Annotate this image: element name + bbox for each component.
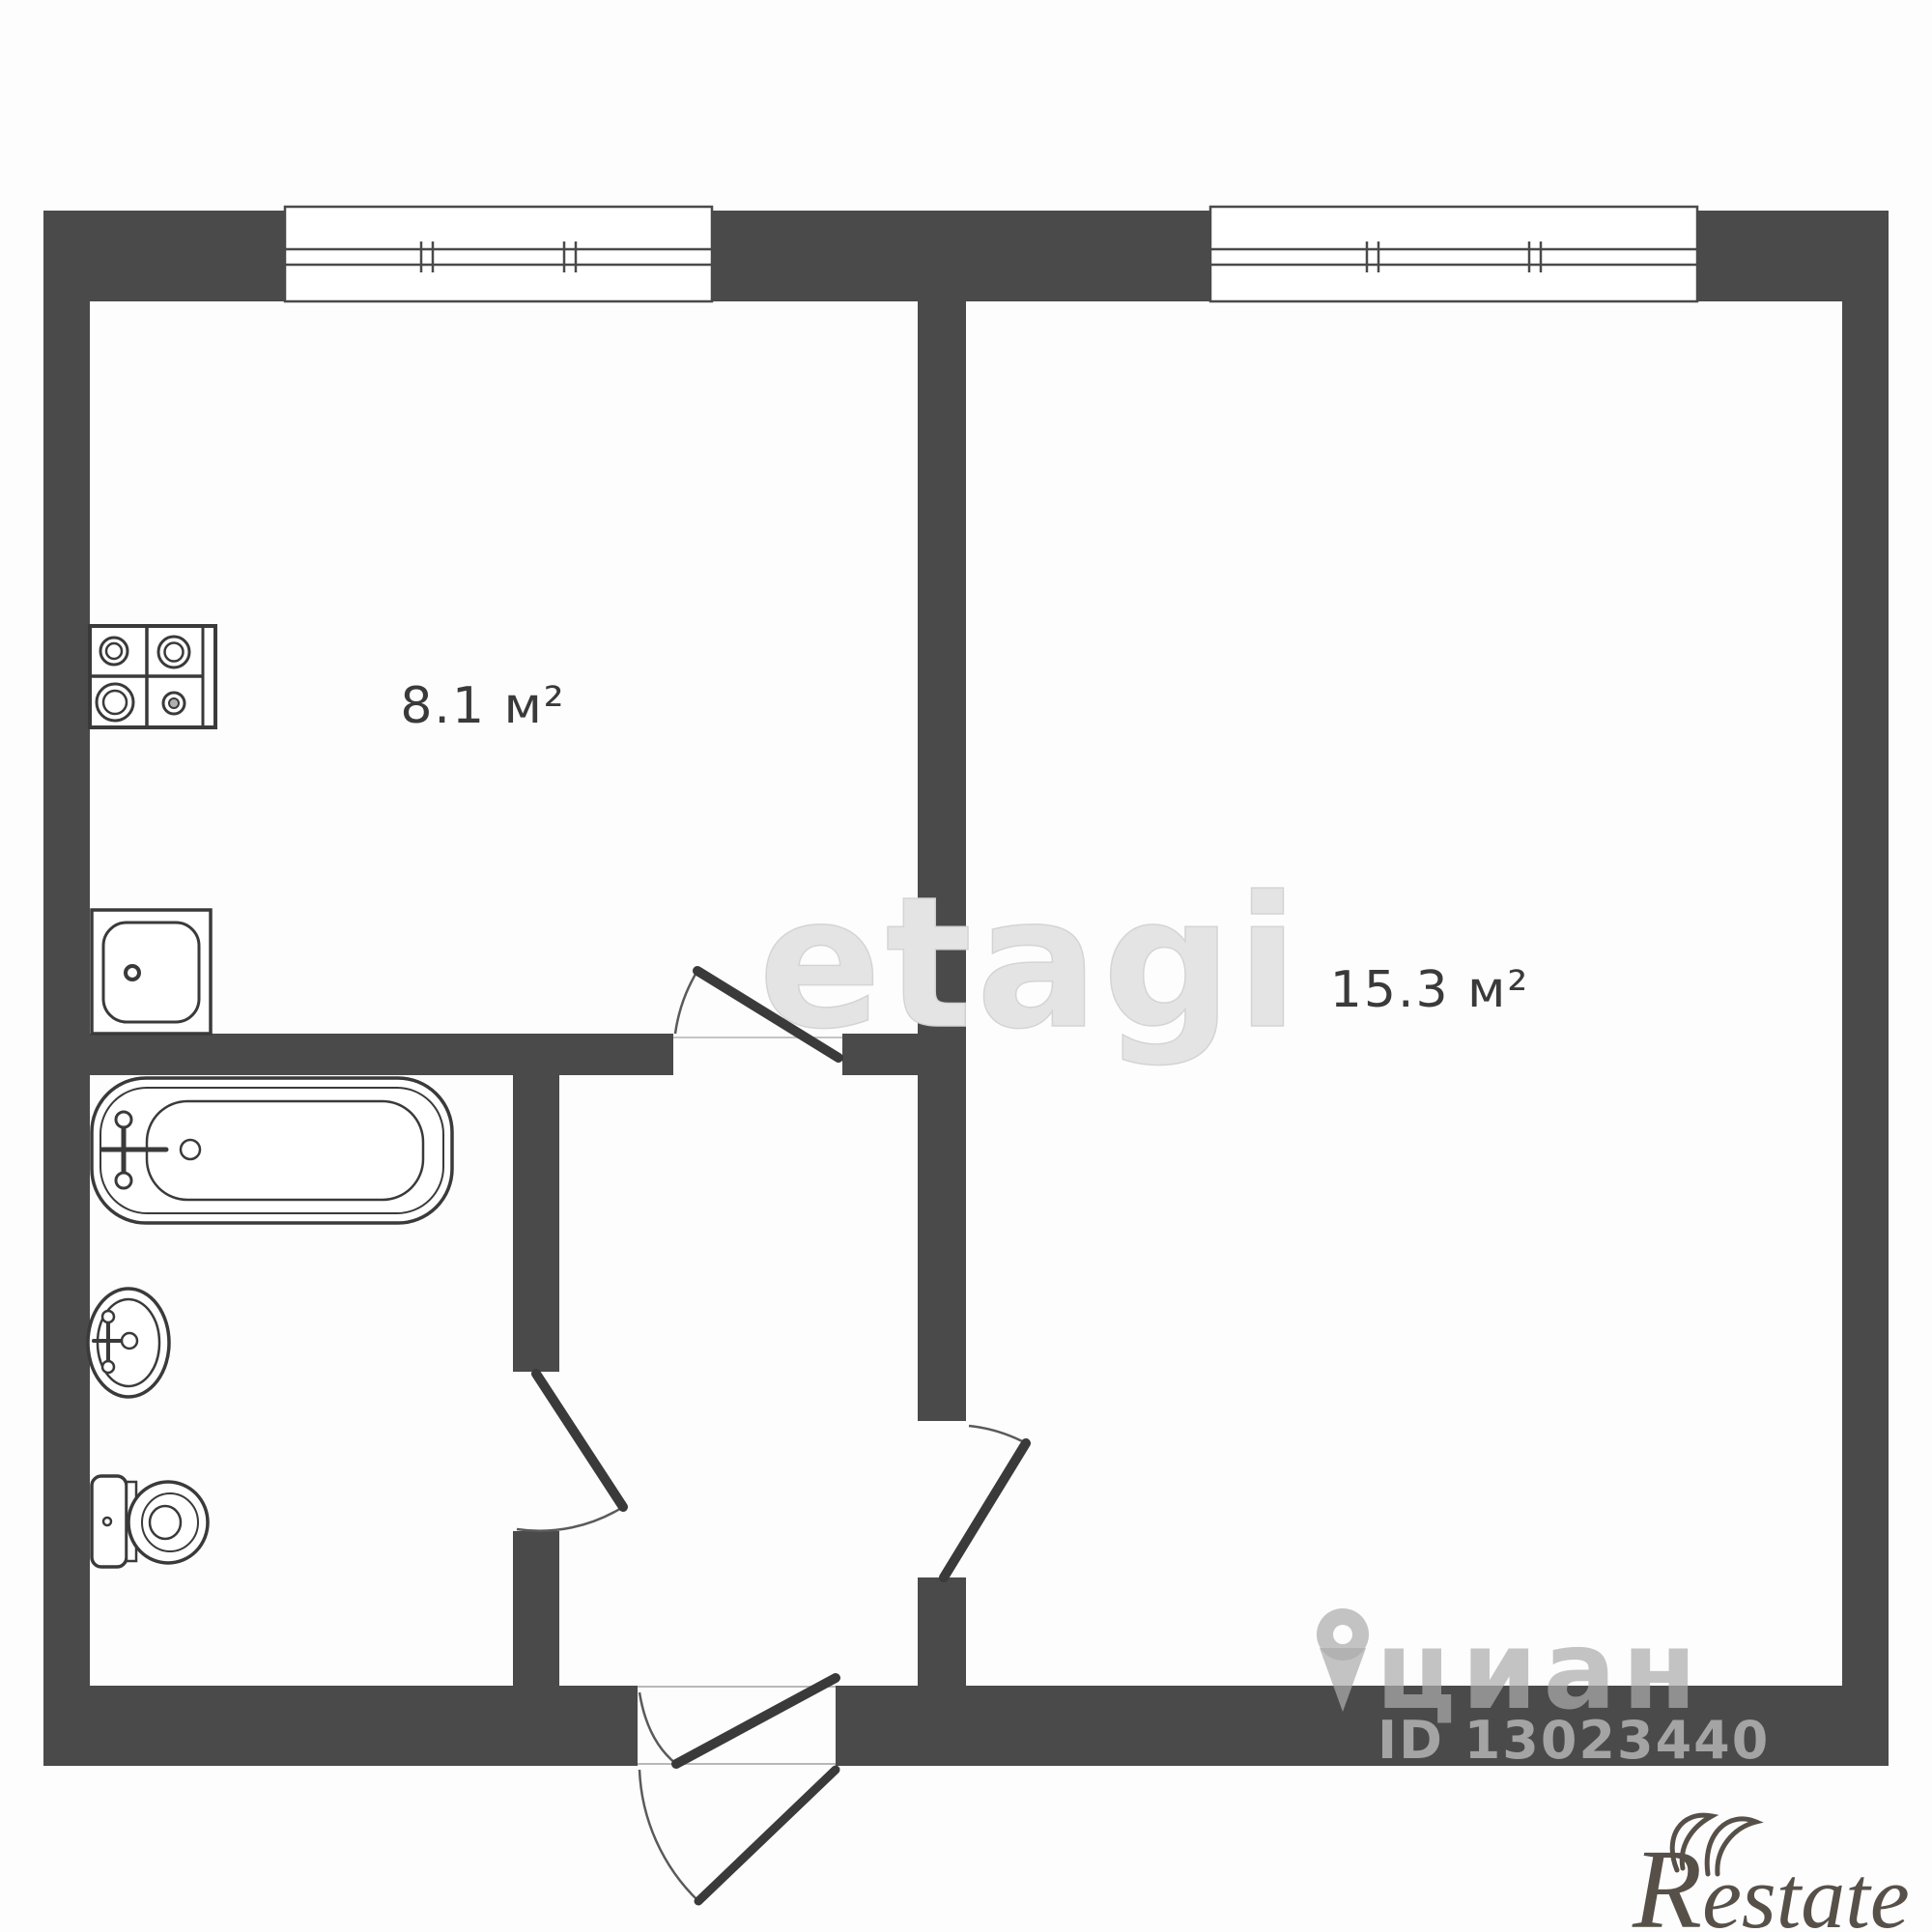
bathtub-icon	[92, 1078, 452, 1223]
wall-left	[43, 211, 90, 1766]
window-right	[1210, 207, 1697, 301]
sink-basin	[103, 923, 199, 1022]
wall-divider-hall-room-upper	[918, 1075, 966, 1421]
restate-initial: R	[1632, 1826, 1702, 1932]
toilet-icon	[92, 1476, 208, 1567]
window-left	[285, 207, 712, 301]
washbasin-icon	[88, 1289, 169, 1397]
cian-watermark: циан ID 13023440	[1317, 1608, 1770, 1771]
wall-bathroom-upper	[513, 1075, 559, 1372]
kitchen-sink-icon	[92, 910, 211, 1034]
window-frame	[285, 207, 712, 301]
living-room-area-label: 15.3 м²	[1330, 961, 1529, 1019]
wall-kitchen-bottom	[90, 1034, 673, 1075]
floor-plan-image: 8.1 м² 15.3 м² etagi циан ID 13023440 Re…	[0, 0, 1932, 1932]
stove-icon	[90, 626, 215, 727]
sink-drain	[126, 966, 139, 980]
toilet-bowl-inner	[150, 1506, 181, 1539]
wall-divider-hall-room-lower	[918, 1577, 966, 1686]
window-frame	[1210, 207, 1697, 301]
etagi-watermark: etagi	[758, 858, 1302, 1069]
cian-id-watermark: ID 13023440	[1378, 1710, 1770, 1771]
wall-bathroom-lower	[513, 1531, 559, 1686]
wall-right	[1842, 211, 1889, 1766]
kitchen-area-label: 8.1 м²	[400, 677, 565, 735]
floor-plan-svg: 8.1 м² 15.3 м² etagi циан ID 13023440 Re…	[0, 0, 1932, 1932]
toilet-button	[103, 1518, 111, 1525]
restate-rest: estate	[1702, 1848, 1910, 1932]
